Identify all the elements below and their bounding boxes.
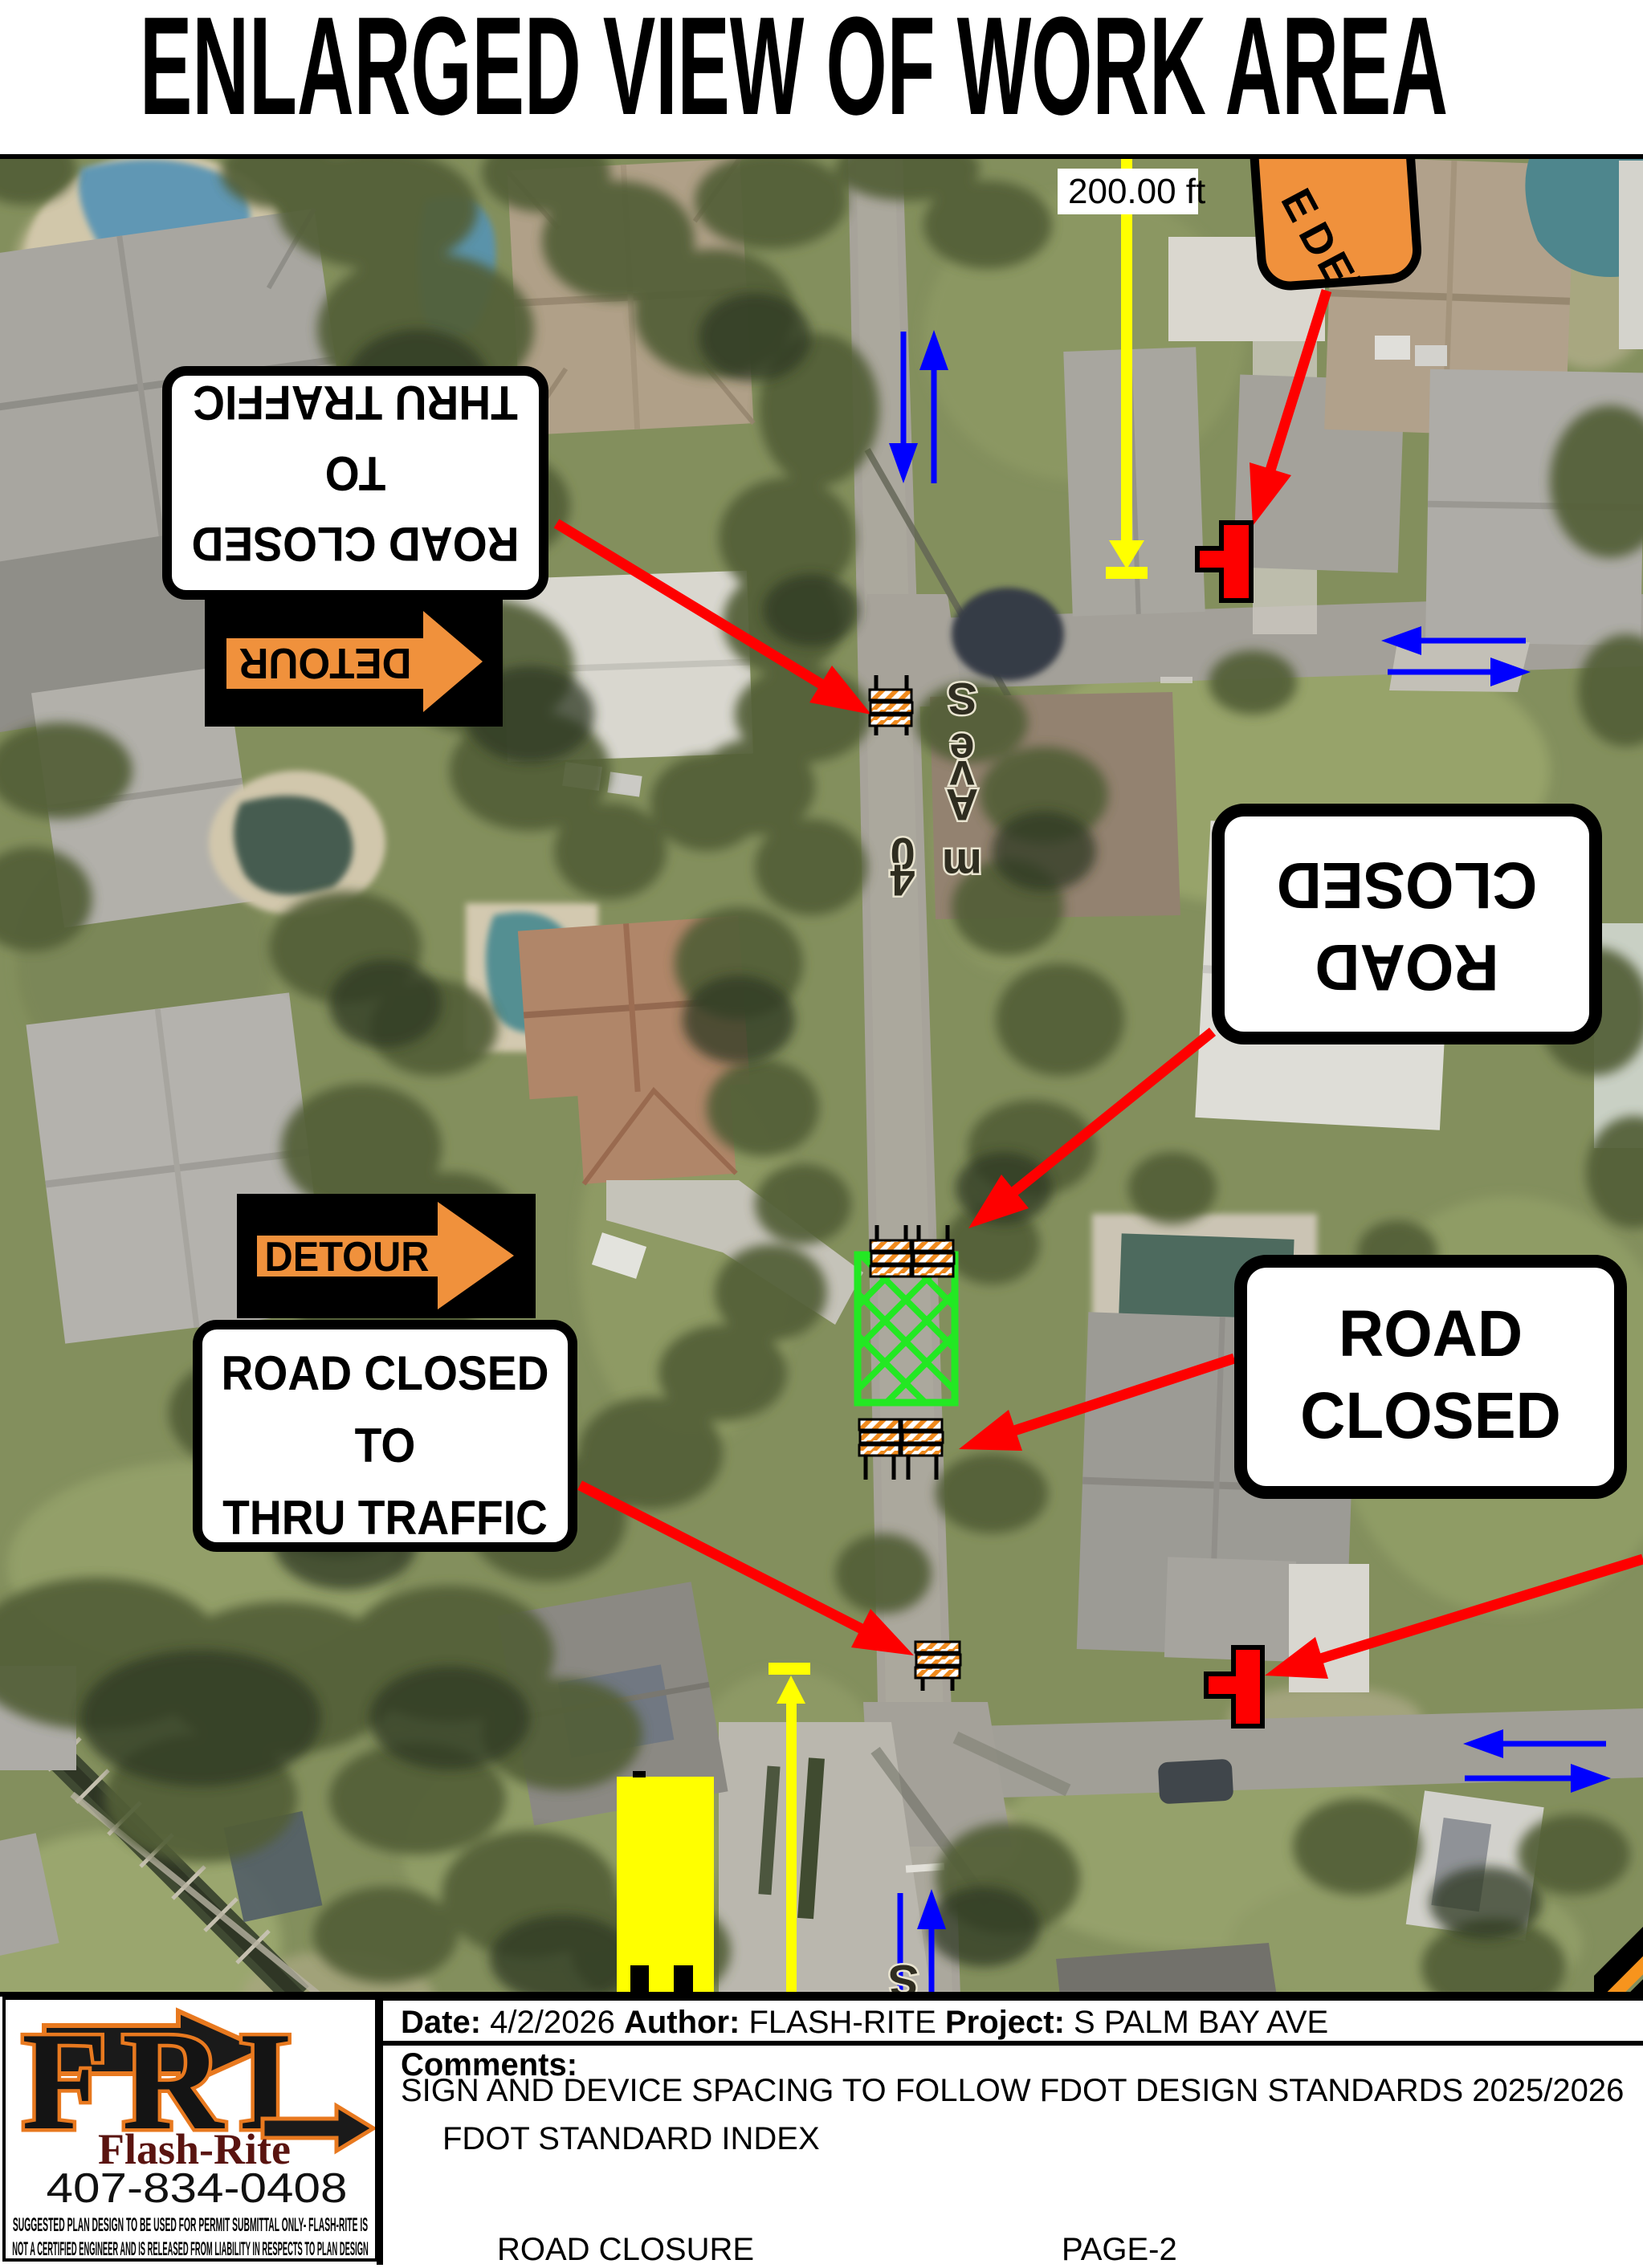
svg-text:A: A — [946, 780, 978, 830]
svg-text:DETOUR: DETOUR — [265, 1234, 430, 1281]
svg-text:SUGGESTED PLAN DESIGN TO BE US: SUGGESTED PLAN DESIGN TO BE USED FOR PER… — [13, 2213, 368, 2235]
svg-text:m: m — [942, 840, 982, 890]
svg-text:S: S — [888, 1956, 918, 1997]
svg-text:NOT A CERTIFIED ENGINEER AND I: NOT A CERTIFIED ENGINEER AND IS RELEASED… — [12, 2238, 368, 2258]
svg-text:200.00 ft: 200.00 ft — [1068, 172, 1205, 211]
svg-text:407-834-0408: 407-834-0408 — [47, 2165, 348, 2212]
svg-text:S: S — [947, 674, 976, 724]
svg-text:DETOUR: DETOUR — [239, 639, 412, 687]
svg-text:4: 4 — [890, 855, 915, 906]
